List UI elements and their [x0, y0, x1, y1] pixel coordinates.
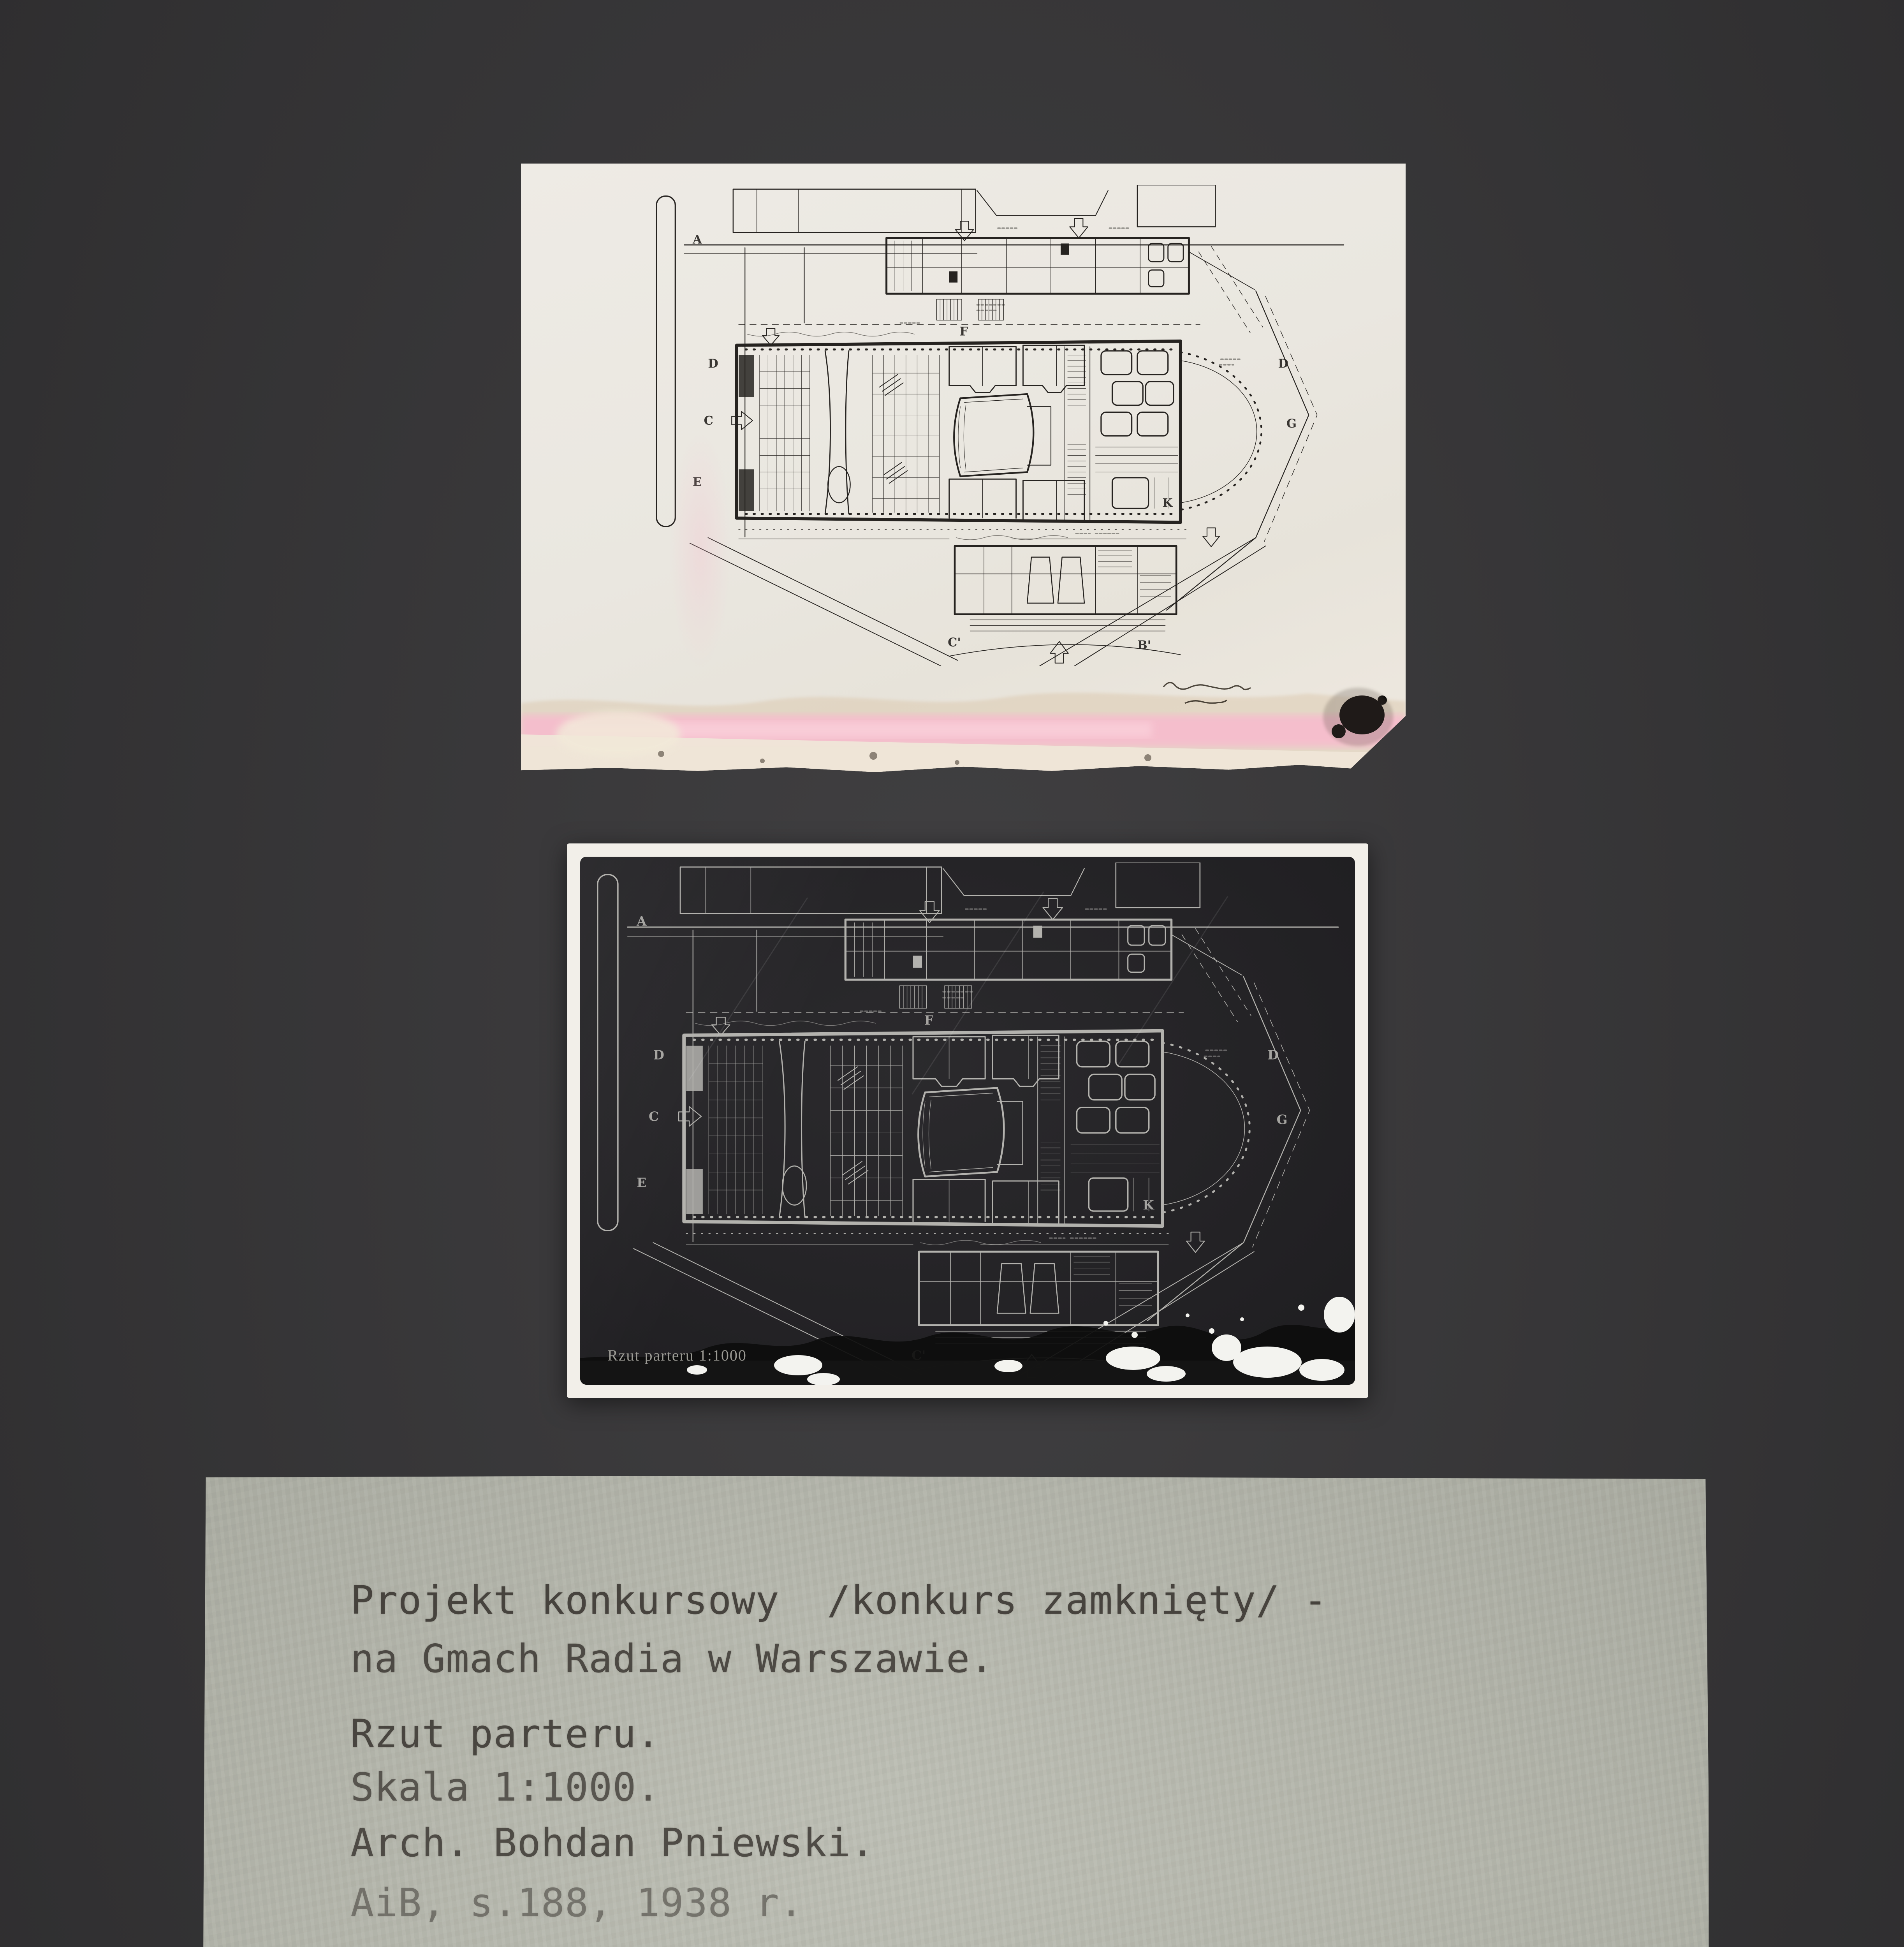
site-plan-drawing	[649, 185, 1346, 666]
typed-line: Projekt konkursowy /konkurs zamknięty/ -	[350, 1581, 1327, 1620]
typed-line: Rzut parteru.	[350, 1715, 660, 1753]
typed-line: na Gmach Radia w Warszawie.	[350, 1639, 994, 1678]
negative-caption: Rzut parteru 1:1000	[607, 1346, 747, 1364]
typed-description: Projekt konkursowy /konkurs zamknięty/ -…	[350, 1581, 1596, 1947]
archive-envelope: Projekt konkursowy /konkurs zamknięty/ -…	[201, 1476, 1709, 1947]
ink-blot	[1323, 688, 1393, 746]
typed-line: Arch. Bohdan Pniewski.	[350, 1824, 875, 1863]
typed-line: AiB, s.188, 1938 r.	[350, 1884, 803, 1922]
pink-smear	[669, 428, 731, 670]
photo-print-negative: Rzut parteru 1:1000	[567, 843, 1368, 1398]
photo-print-positive	[521, 164, 1406, 773]
typed-line: Skala 1:1000.	[350, 1768, 660, 1807]
photo-damage	[521, 657, 1406, 773]
negative-film: Rzut parteru 1:1000	[580, 857, 1355, 1385]
negative-damage	[580, 1268, 1355, 1385]
archive-board: Rzut parteru 1:1000	[0, 0, 1904, 1947]
